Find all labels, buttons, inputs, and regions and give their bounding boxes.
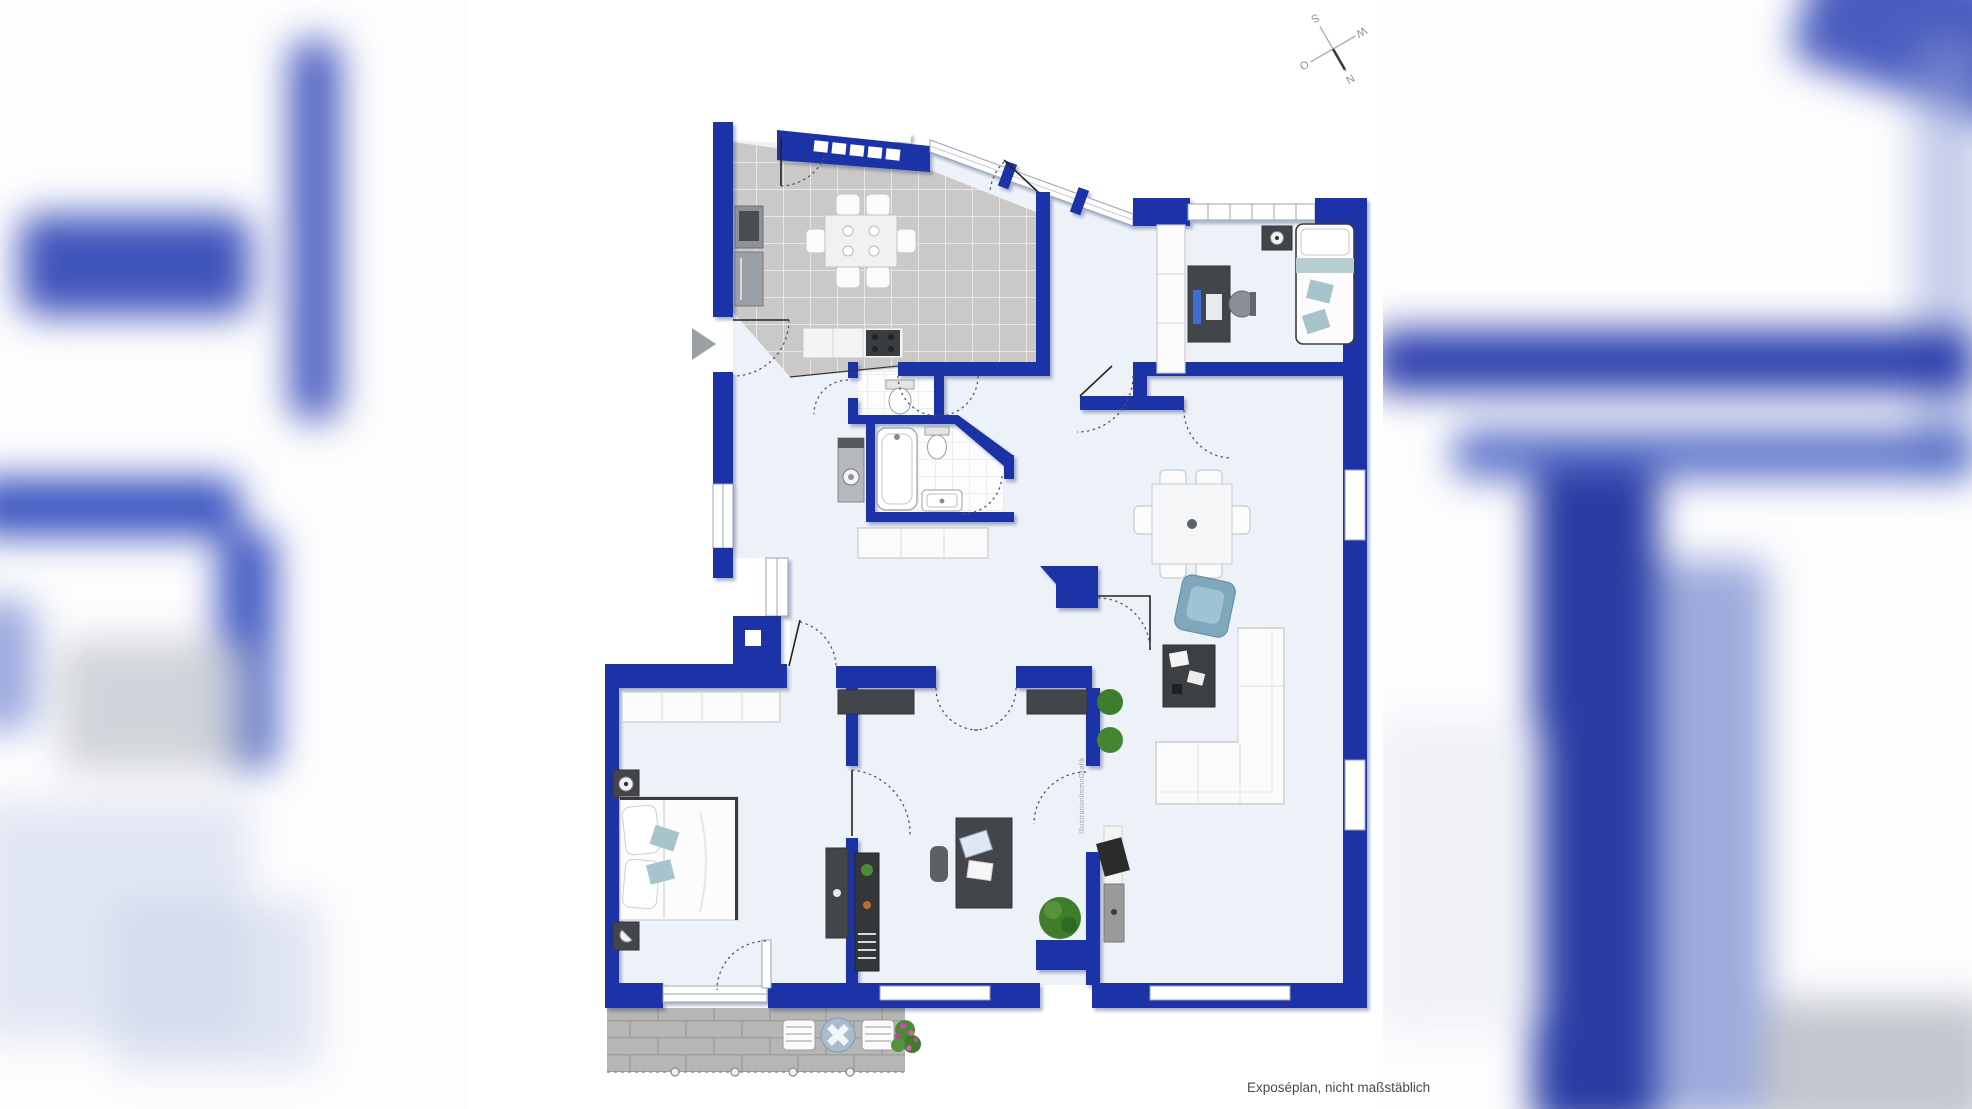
pillar [1056, 566, 1098, 608]
plant [1097, 727, 1123, 753]
wall [713, 372, 733, 484]
wall [1004, 455, 1014, 479]
wall [866, 424, 875, 514]
bench [783, 1020, 815, 1050]
sink [922, 490, 962, 511]
keyboard [1206, 294, 1222, 320]
wall [605, 983, 663, 1008]
wardrobe-side [826, 848, 848, 938]
sideboard [1027, 690, 1087, 714]
plant [1097, 689, 1123, 715]
nightstand [613, 922, 639, 950]
wall [1016, 666, 1092, 688]
wall [605, 664, 619, 1008]
wall [898, 362, 1038, 376]
blanket [1296, 258, 1354, 273]
entry-arrow-icon [692, 328, 716, 360]
compass-rose: N S O W [1279, 0, 1386, 103]
wall [1036, 192, 1050, 376]
shelf-unit [855, 853, 879, 971]
wall [713, 122, 733, 317]
wall [866, 512, 1014, 522]
chimney-flue [745, 630, 761, 646]
oven-tower [735, 206, 763, 306]
nightstand [613, 770, 639, 798]
door-leaf-terrace [762, 940, 771, 988]
chair [836, 266, 860, 288]
pillow [1301, 229, 1349, 255]
papers [967, 860, 993, 880]
wall [1036, 940, 1100, 970]
bed-single [1296, 224, 1354, 344]
window-band [1345, 470, 1365, 540]
office-chair [930, 846, 948, 882]
wall [768, 983, 852, 1008]
wardrobe-row [622, 692, 780, 722]
cooktop [866, 330, 900, 356]
compass-label-north: N [1344, 71, 1357, 85]
bathtub [877, 428, 917, 510]
wall [836, 666, 936, 688]
plant-leaf [1044, 901, 1062, 919]
plant-leaf [1061, 917, 1077, 933]
round-table [821, 1018, 855, 1052]
kitchen-counter [803, 328, 903, 358]
monitor [1193, 290, 1201, 324]
wall [605, 664, 787, 688]
window-band [1150, 986, 1290, 1000]
terrace-floor [607, 1008, 905, 1072]
bed-double [620, 797, 738, 920]
floor-plan: N S O W IllustrationImmoGrafik Exposépla… [0, 0, 1972, 1109]
wall [1133, 198, 1190, 226]
compass-needle [1333, 49, 1345, 70]
washing-machine [838, 438, 864, 502]
chair [806, 229, 826, 253]
table-top [825, 215, 897, 267]
wall [1080, 396, 1184, 410]
footer-note: Exposéplan, nicht maßstäblich [1247, 1080, 1430, 1095]
bench [862, 1020, 894, 1050]
sideboard [838, 690, 914, 714]
chair [866, 266, 890, 288]
chair [836, 194, 860, 216]
window-band [1345, 760, 1365, 830]
compass-label-south: S [1309, 11, 1321, 25]
window-band [880, 986, 990, 1000]
sideboard-bath [858, 528, 988, 558]
wall [713, 548, 733, 578]
chair-back [1250, 292, 1256, 316]
plant [1039, 897, 1081, 939]
compass-label-east: O [1297, 57, 1311, 72]
watermark: IllustrationImmoGrafik [1079, 757, 1086, 834]
chair [866, 194, 890, 216]
nightstand [1262, 226, 1292, 250]
wall [934, 362, 944, 420]
chair [896, 229, 916, 253]
tall-cabinet [1157, 225, 1185, 373]
coffee-table [1163, 645, 1215, 707]
compass-label-west: W [1353, 24, 1369, 40]
armchair-cushion [1185, 585, 1225, 625]
